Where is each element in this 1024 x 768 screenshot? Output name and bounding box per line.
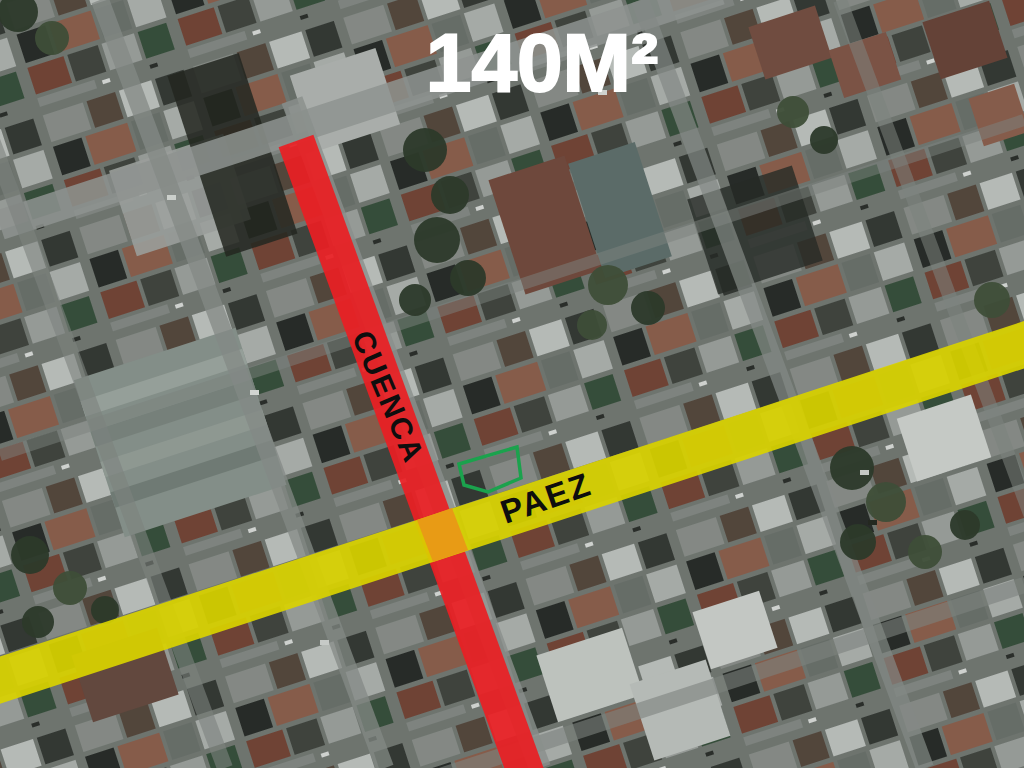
annotation-overlay	[0, 0, 1024, 768]
property-outline	[459, 447, 521, 492]
area-title: 140M²	[426, 22, 658, 104]
property-satellite-view: 140M² CUENCA PAEZ	[0, 0, 1024, 768]
